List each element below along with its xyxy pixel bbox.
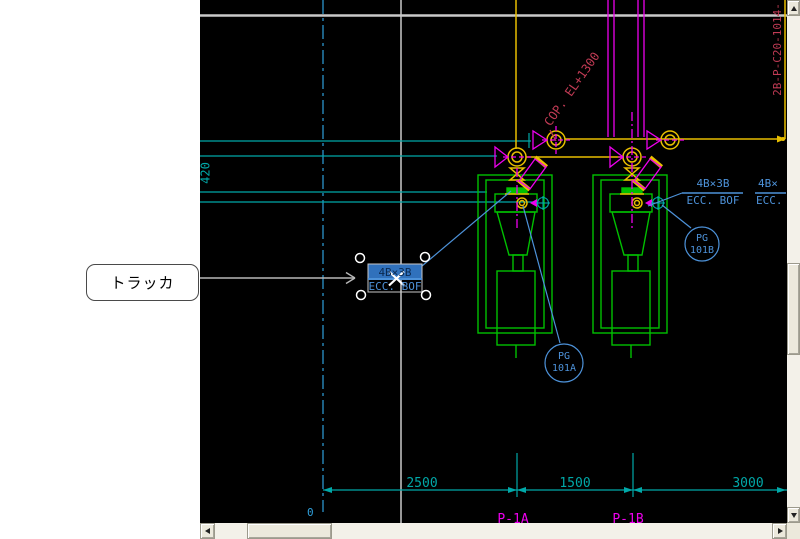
down-arrow-icon (791, 513, 797, 518)
scroll-left-button[interactable] (200, 523, 215, 539)
tracker-callout: トラッカ (86, 264, 199, 301)
grip (357, 291, 366, 300)
drawing-geometry (200, 0, 787, 523)
drawing-canvas[interactable]: 420 2500 1500 3000 0 COP. EL+1300 2B-P-C… (200, 0, 787, 523)
scroll-down-button[interactable] (787, 507, 800, 523)
scrollbar-corner (787, 523, 800, 539)
grip (422, 291, 431, 300)
pg-101b-balloon (685, 227, 719, 261)
yellow-piping (505, 0, 786, 208)
horizontal-scrollbar[interactable] (200, 523, 787, 539)
blue-annotations (422, 191, 786, 382)
pg-101a-balloon (545, 344, 583, 382)
sheet-border-lines (200, 0, 787, 523)
vertical-scrollbar[interactable] (787, 0, 800, 523)
magenta-lines-valves (495, 0, 684, 230)
grip (421, 253, 430, 262)
right-arrow-icon (778, 528, 783, 534)
horizontal-scrollbar-thumb[interactable] (247, 523, 332, 539)
tracker-arrow (200, 273, 355, 284)
up-arrow-icon (791, 6, 797, 11)
scroll-right-button[interactable] (772, 523, 787, 539)
left-arrow-icon (205, 528, 210, 534)
scroll-up-button[interactable] (787, 0, 800, 16)
dimension-lines (323, 453, 787, 497)
grip (356, 254, 365, 263)
tracker-callout-label: トラッカ (110, 272, 174, 293)
vertical-scrollbar-thumb[interactable] (787, 263, 800, 355)
